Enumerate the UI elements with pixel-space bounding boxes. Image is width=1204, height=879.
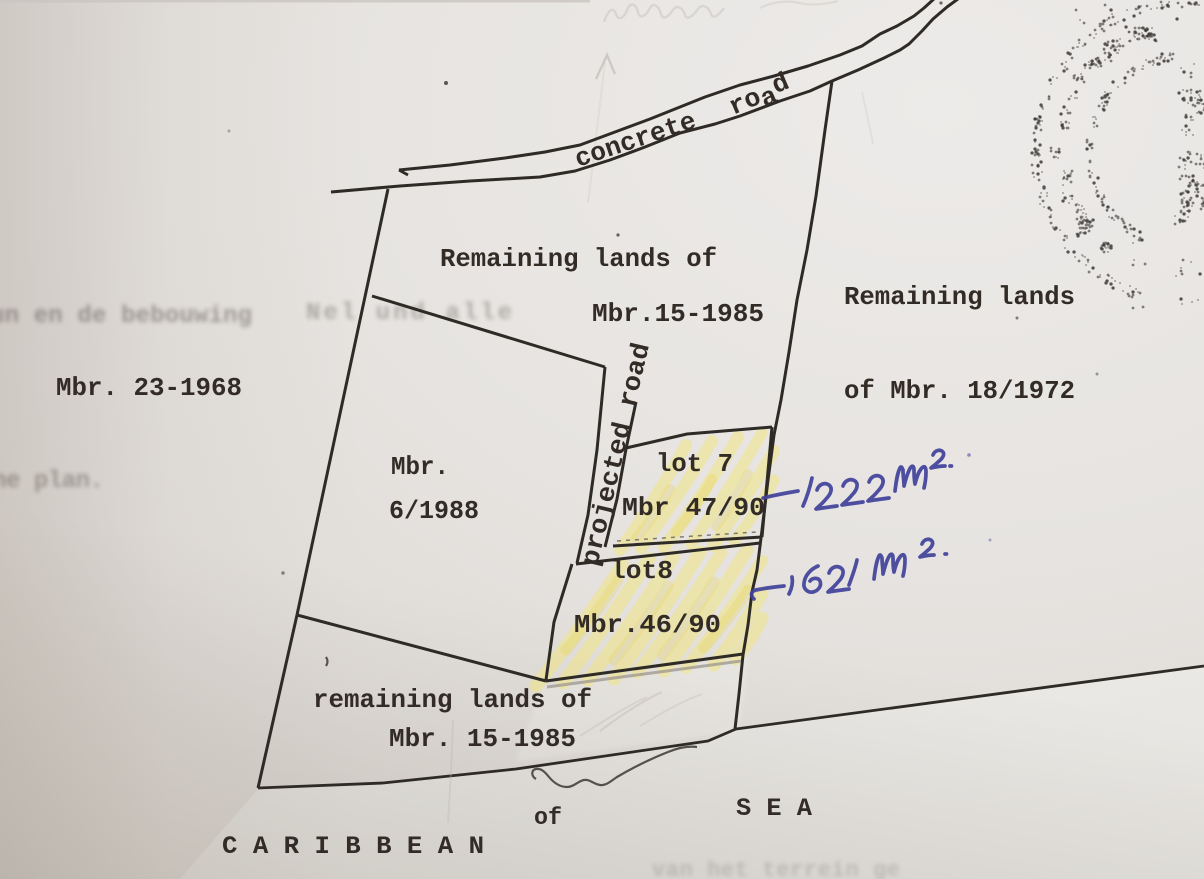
svg-text:C A R I B B E A N: C A R I B B E A N: [222, 832, 484, 861]
svg-text:Mbr. 23-1968: Mbr. 23-1968: [56, 373, 242, 403]
svg-text:6/1988: 6/1988: [389, 496, 479, 526]
svg-text:of: of: [534, 805, 562, 832]
svg-text:of Mbr. 18/1972: of Mbr. 18/1972: [844, 376, 1075, 406]
svg-text:Mbr.15-1985: Mbr.15-1985: [592, 299, 764, 329]
svg-text:lot8: lot8: [610, 556, 673, 586]
svg-text:lot 7: lot 7: [656, 449, 733, 479]
svg-text:ne plan.: ne plan.: [0, 468, 104, 495]
svg-text:Mbr 47/90: Mbr 47/90: [622, 493, 765, 523]
svg-text:remaining lands of: remaining lands of: [313, 685, 592, 715]
svg-text:van het terrein ge: van het terrein ge: [652, 858, 900, 879]
svg-text:S E A: S E A: [736, 794, 812, 823]
svg-text:Remaining lands: Remaining lands: [844, 282, 1075, 312]
svg-text:Remaining lands of: Remaining lands of: [440, 244, 717, 274]
svg-text:Mbr.: Mbr.: [391, 452, 449, 482]
svg-text:Mbr.46/90: Mbr.46/90: [574, 610, 721, 640]
svg-text:un en de bebouwing: un en de bebouwing: [0, 303, 252, 330]
svg-text:Mbr. 15-1985: Mbr. 15-1985: [389, 724, 576, 754]
